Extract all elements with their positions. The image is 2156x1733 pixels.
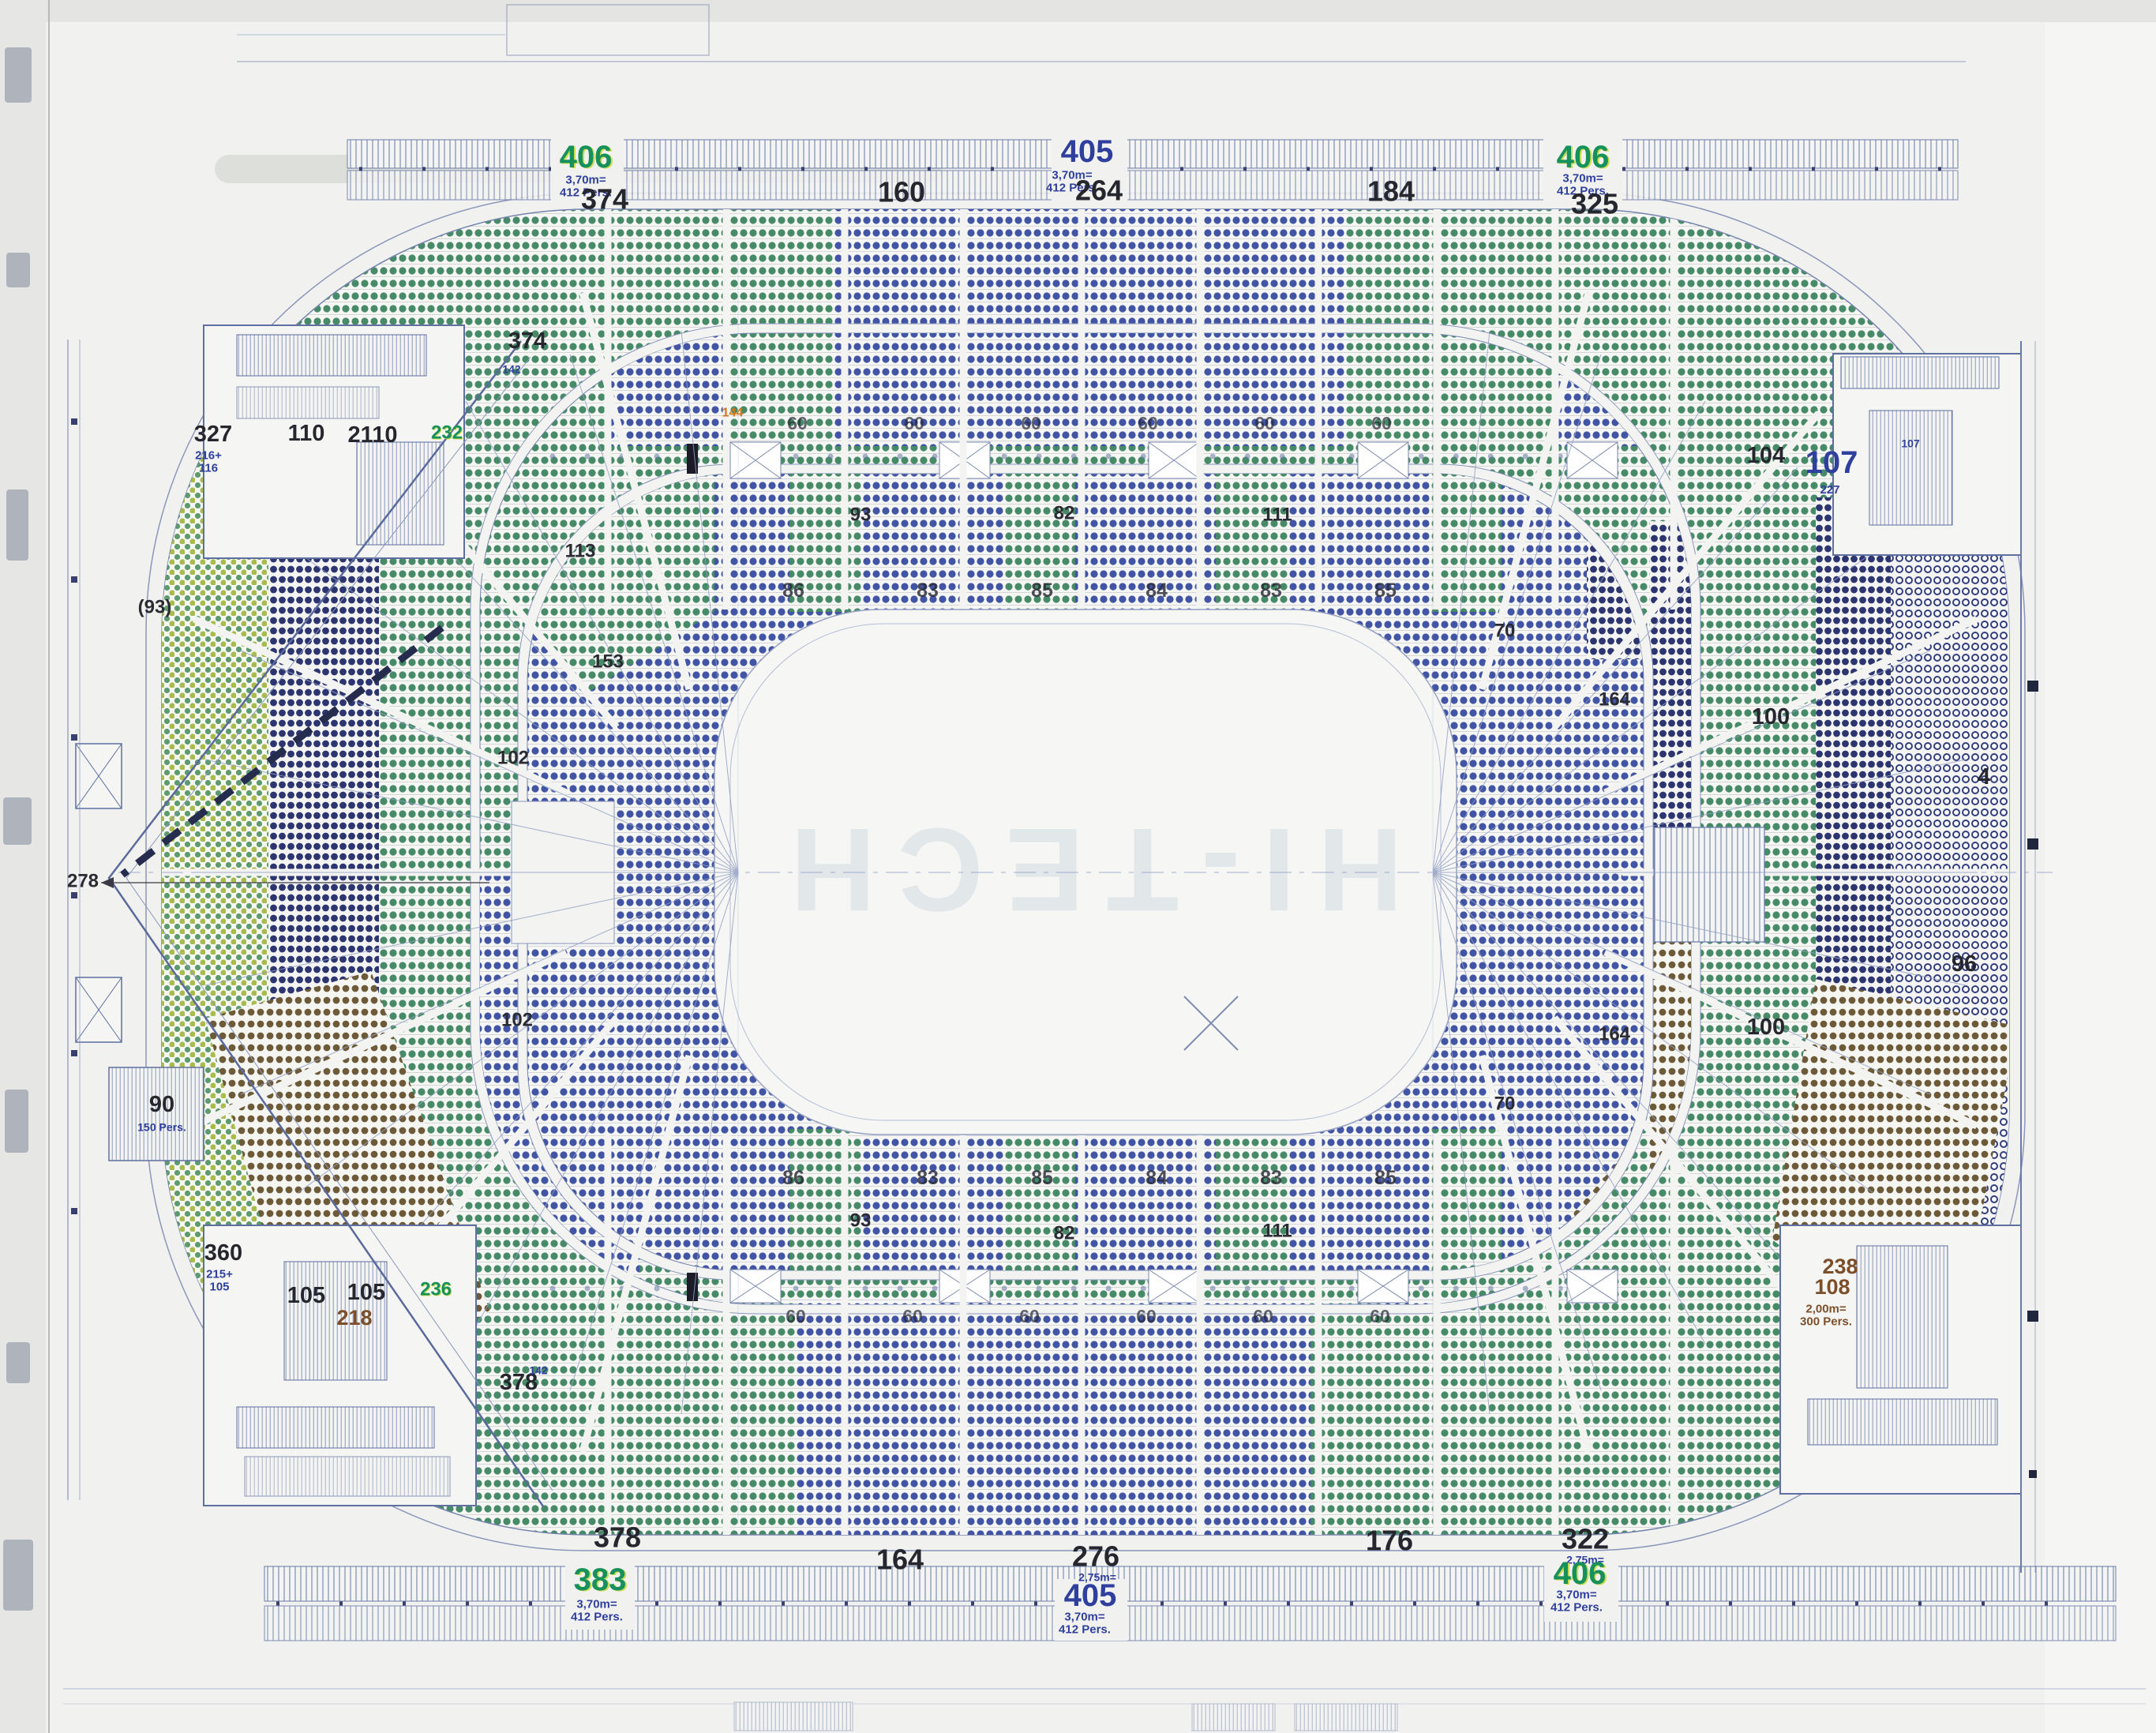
scanned-plan-page: HI-TECH	[0, 0, 2156, 1733]
east-entrance-tunnel	[1654, 827, 1764, 942]
scan-left-edge	[0, 0, 49, 1733]
facility-block-se	[1780, 1225, 2021, 1494]
facility-block-ne	[1833, 354, 2021, 555]
bleed-through-text: HI-TECH	[768, 804, 1403, 936]
standing-terrace-north	[347, 136, 1958, 207]
facility-block-nw	[204, 325, 464, 558]
standing-terrace-south	[264, 1555, 2116, 1641]
door-mark-south	[687, 1273, 698, 1301]
arena-plan-drawing: HI-TECH	[0, 0, 2156, 1733]
